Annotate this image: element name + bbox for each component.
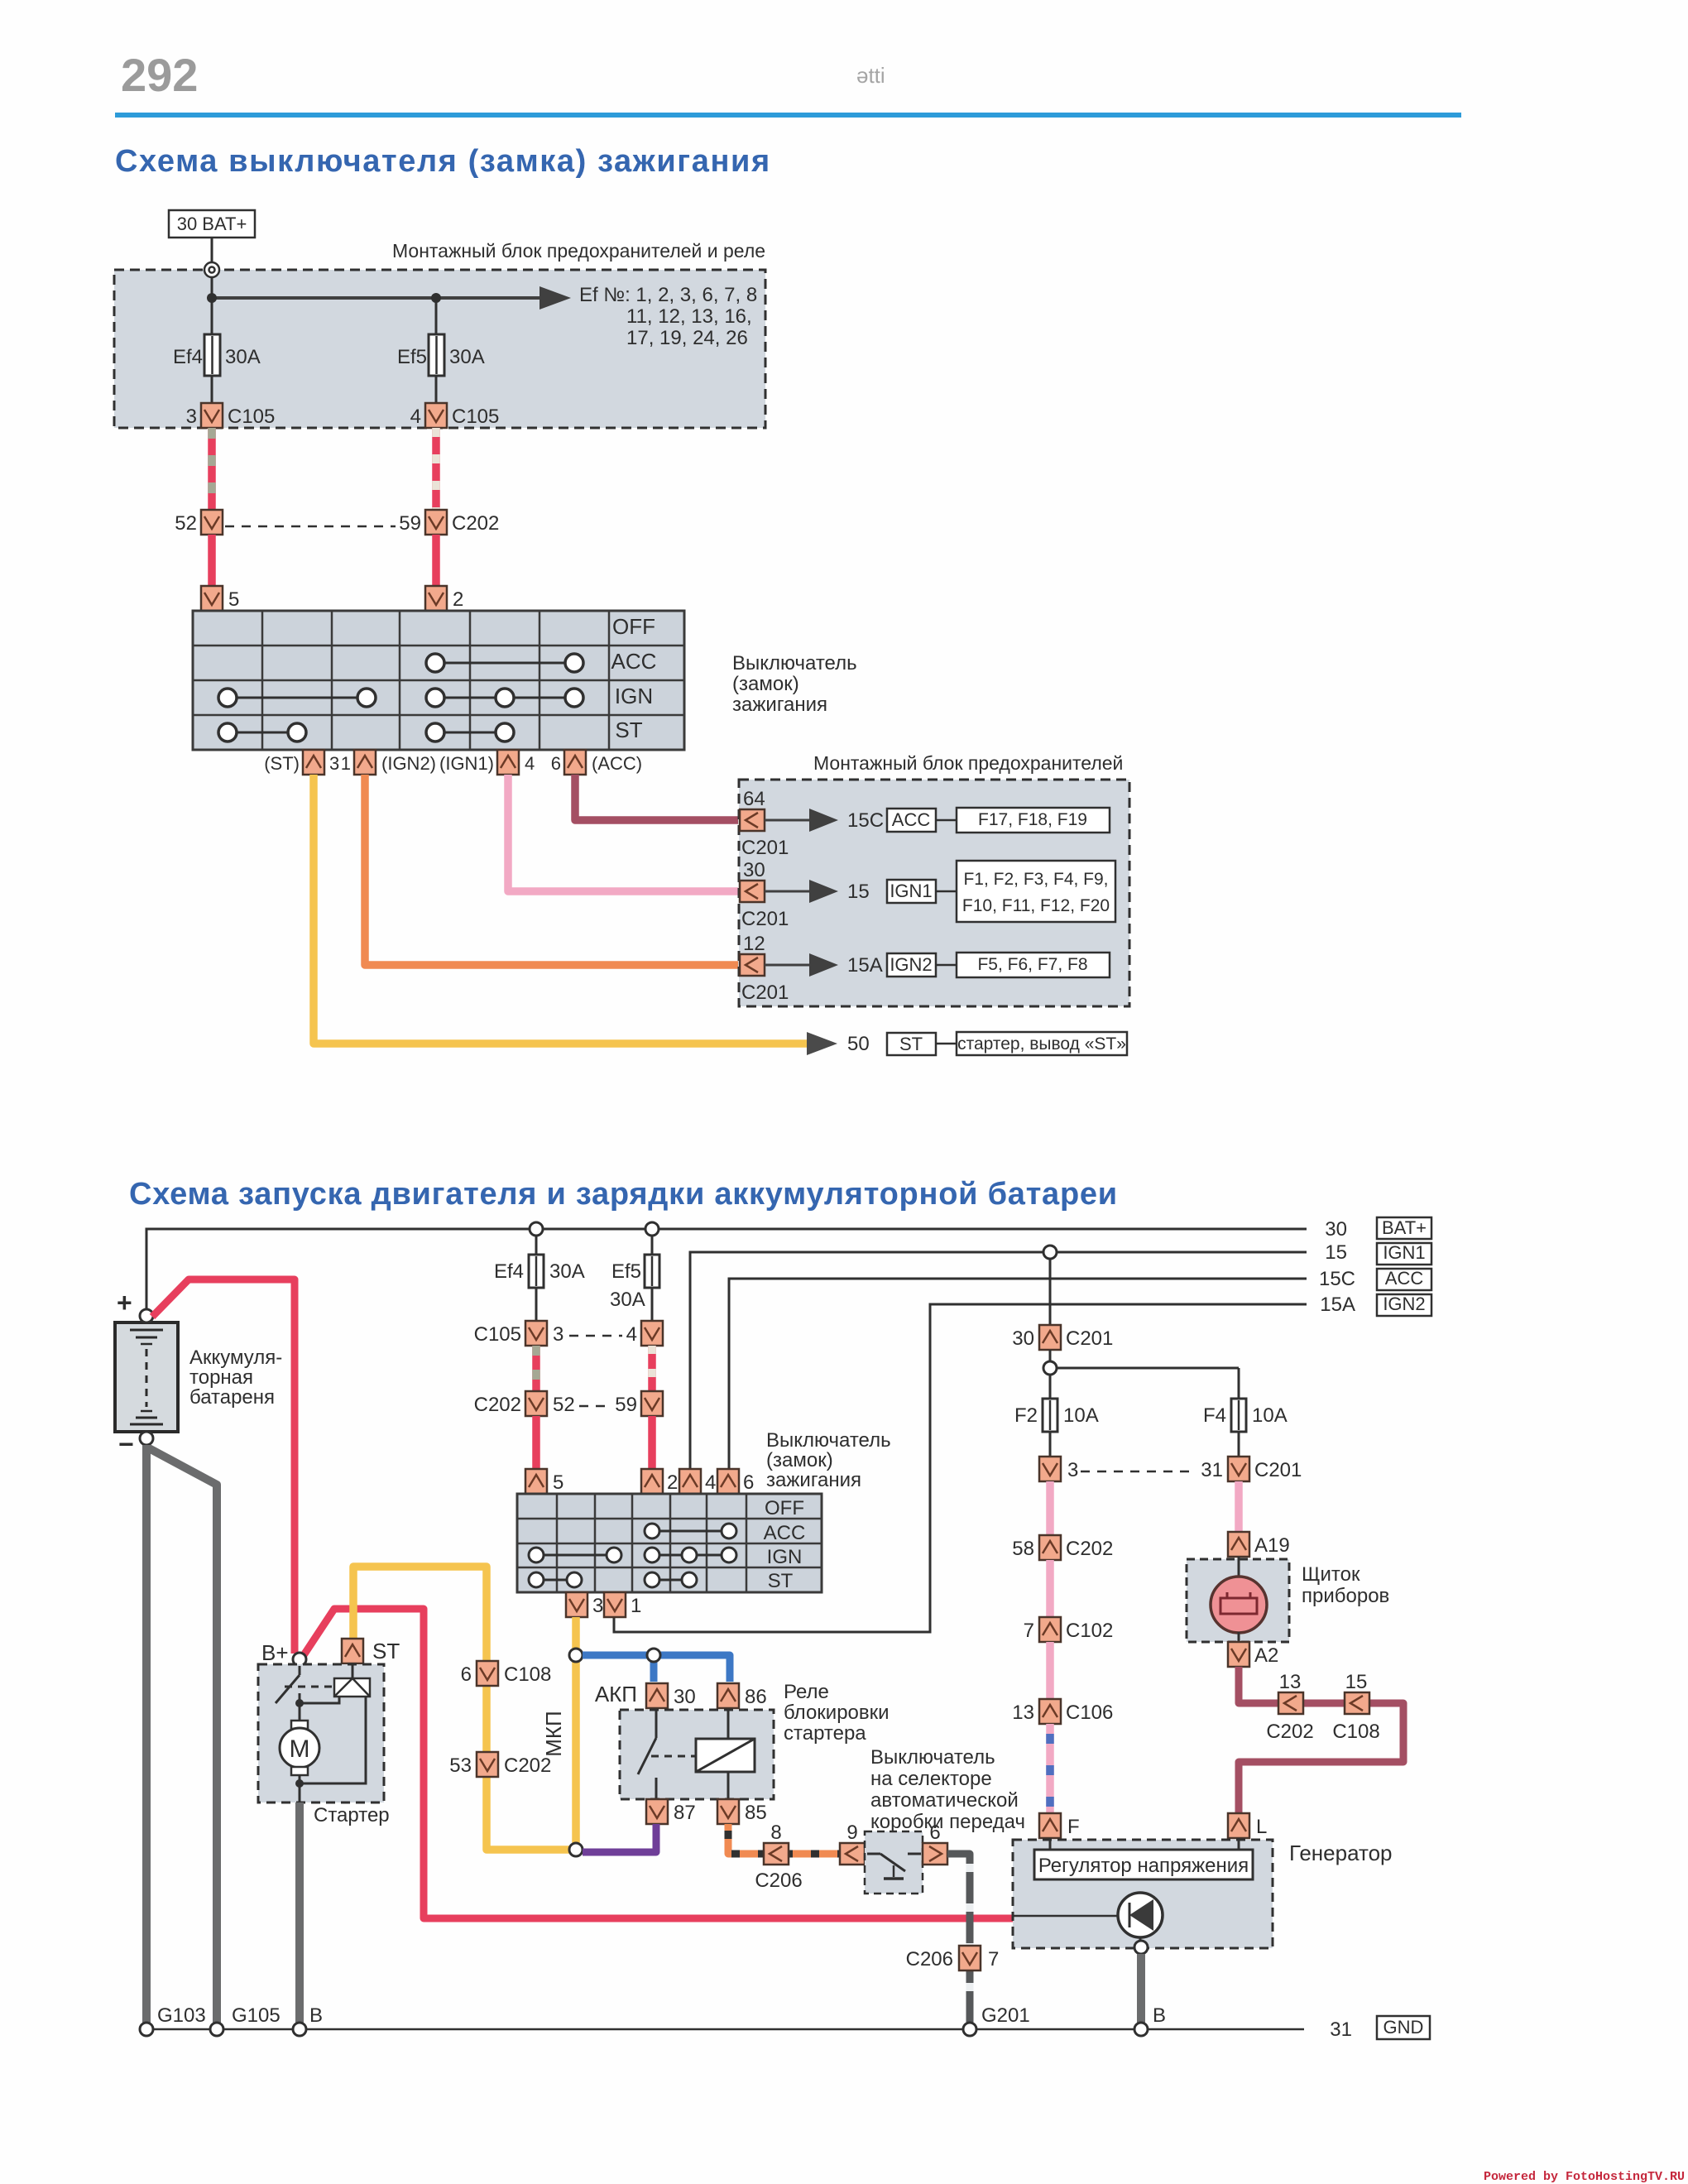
svg-text:C108: C108 [1332, 1721, 1379, 1743]
svg-text:30: 30 [743, 859, 765, 881]
svg-text:АКП: АКП [595, 1682, 637, 1706]
svg-text:59: 59 [399, 512, 421, 535]
svg-text:батареня: батареня [189, 1386, 275, 1409]
svg-text:IGN2: IGN2 [1383, 1294, 1425, 1314]
svg-text:3: 3 [186, 406, 197, 428]
svg-text:G105: G105 [232, 2004, 281, 2027]
svg-text:1: 1 [631, 1595, 641, 1617]
svg-text:30A: 30A [549, 1260, 585, 1283]
svg-text:85: 85 [745, 1802, 767, 1824]
svg-text:F4: F4 [1203, 1404, 1226, 1427]
svg-text:(ST): (ST) [264, 753, 300, 774]
svg-text:11, 12, 13, 16,: 11, 12, 13, 16, [626, 305, 752, 328]
svg-text:ACC: ACC [611, 649, 657, 674]
svg-text:OFF: OFF [765, 1497, 804, 1519]
svg-text:F2: F2 [1014, 1404, 1038, 1427]
svg-text:6: 6 [929, 1822, 940, 1844]
svg-text:C202: C202 [474, 1394, 521, 1416]
svg-text:ACC: ACC [764, 1522, 806, 1544]
svg-text:блокировки: блокировки [784, 1702, 890, 1724]
svg-text:15: 15 [1325, 1241, 1347, 1264]
svg-text:G103: G103 [157, 2004, 206, 2027]
svg-text:13: 13 [1012, 1702, 1034, 1724]
svg-text:Схема выключателя (замка) зажи: Схема выключателя (замка) зажигания [115, 144, 771, 179]
svg-text:6: 6 [743, 1471, 754, 1494]
svg-text:IGN: IGN [615, 684, 653, 708]
svg-text:Регулятор напряжения: Регулятор напряжения [1038, 1855, 1249, 1877]
svg-text:4: 4 [525, 753, 535, 774]
svg-text:C105: C105 [452, 406, 499, 428]
svg-text:Реле: Реле [784, 1681, 829, 1703]
svg-text:Щиток: Щиток [1302, 1563, 1360, 1586]
svg-text:3: 3 [592, 1595, 603, 1617]
svg-text:3: 3 [553, 1323, 563, 1346]
svg-text:(замок): (замок) [766, 1449, 833, 1471]
svg-text:F10, F11, F12, F20: F10, F11, F12, F20 [962, 896, 1110, 915]
svg-text:C201: C201 [741, 837, 789, 859]
svg-text:Монтажный блок предохранителей: Монтажный блок предохранителей [813, 752, 1123, 774]
svg-text:(IGN1): (IGN1) [439, 753, 494, 774]
svg-text:Выключатель: Выключатель [766, 1429, 891, 1452]
svg-text:10A: 10A [1252, 1404, 1288, 1427]
svg-text:7: 7 [1024, 1620, 1034, 1642]
svg-text:30: 30 [674, 1686, 696, 1708]
svg-text:C201: C201 [1066, 1327, 1113, 1350]
svg-text:−: − [118, 1429, 134, 1459]
svg-text:15A: 15A [847, 954, 883, 977]
svg-text:ST: ST [615, 718, 642, 742]
svg-text:59: 59 [615, 1394, 637, 1416]
svg-text:Выключатель: Выключатель [732, 652, 857, 674]
svg-text:BAT+: BAT+ [1382, 1217, 1427, 1238]
svg-text:5: 5 [228, 588, 239, 611]
svg-text:IGN1: IGN1 [1383, 1242, 1425, 1263]
svg-text:Генератор: Генератор [1289, 1841, 1393, 1865]
svg-text:(замок): (замок) [732, 673, 799, 695]
svg-text:64: 64 [743, 788, 765, 810]
svg-text:Ef5: Ef5 [397, 346, 427, 368]
svg-text:3: 3 [329, 753, 339, 774]
svg-text:торная: торная [189, 1366, 253, 1389]
svg-text:ST: ST [372, 1639, 400, 1663]
svg-text:C201: C201 [741, 982, 789, 1004]
svg-text:4: 4 [705, 1471, 716, 1494]
svg-text:F: F [1067, 1816, 1080, 1838]
svg-text:C108: C108 [504, 1663, 551, 1686]
svg-text:зажигания: зажигания [732, 694, 827, 716]
svg-text:C105: C105 [474, 1323, 521, 1346]
svg-text:52: 52 [553, 1394, 575, 1416]
svg-text:10A: 10A [1063, 1404, 1099, 1427]
svg-text:+: + [117, 1288, 132, 1318]
svg-text:G201: G201 [981, 2004, 1030, 2027]
svg-text:ACC: ACC [1385, 1268, 1424, 1289]
svg-text:ST: ST [899, 1034, 923, 1054]
svg-text:Ef4: Ef4 [173, 346, 203, 368]
svg-text:Выключатель: Выключатель [870, 1746, 995, 1769]
svg-text:8: 8 [770, 1822, 781, 1844]
svg-text:58: 58 [1012, 1538, 1034, 1560]
svg-text:31: 31 [1201, 1459, 1223, 1481]
svg-text:F17, F18, F19: F17, F18, F19 [978, 810, 1087, 829]
svg-text:коробки передач: коробки передач [870, 1811, 1025, 1833]
svg-text:приборов: приборов [1302, 1585, 1389, 1607]
svg-text:9: 9 [846, 1822, 857, 1844]
svg-text:7: 7 [988, 1948, 999, 1970]
svg-text:30 BAT+: 30 BAT+ [177, 214, 247, 234]
svg-text:15C: 15C [847, 809, 884, 832]
svg-text:C105: C105 [228, 406, 275, 428]
svg-text:C202: C202 [1066, 1538, 1113, 1560]
svg-text:C206: C206 [755, 1870, 802, 1892]
svg-text:5: 5 [553, 1471, 563, 1494]
svg-text:C202: C202 [504, 1754, 551, 1777]
svg-text:F1, F2, F3, F4, F9,: F1, F2, F3, F4, F9, [963, 870, 1108, 889]
svg-text:30A: 30A [225, 346, 261, 368]
svg-text:31: 31 [1330, 2018, 1352, 2041]
svg-text:52: 52 [175, 512, 197, 535]
svg-text:53: 53 [449, 1754, 472, 1777]
svg-text:L: L [1256, 1816, 1267, 1838]
svg-text:17, 19, 24, 26: 17, 19, 24, 26 [626, 327, 748, 349]
svg-text:IGN2: IGN2 [890, 954, 932, 975]
svg-text:стартера: стартера [784, 1722, 866, 1745]
svg-text:15: 15 [847, 881, 870, 903]
svg-text:GND: GND [1383, 2017, 1424, 2038]
svg-text:13: 13 [1279, 1671, 1302, 1693]
svg-text:B+: B+ [261, 1640, 289, 1665]
svg-text:зажигания: зажигания [766, 1469, 861, 1491]
svg-text:15A: 15A [1320, 1294, 1355, 1316]
svg-text:50: 50 [847, 1033, 870, 1055]
svg-text:Схема запуска двигателя и заря: Схема запуска двигателя и зарядки аккуму… [129, 1177, 1118, 1212]
svg-text:6: 6 [461, 1663, 472, 1686]
svg-text:A19: A19 [1254, 1534, 1290, 1557]
svg-text:IGN1: IGN1 [890, 881, 932, 901]
svg-text:C201: C201 [1254, 1459, 1302, 1481]
svg-text:на селекторе: на селекторе [870, 1768, 992, 1790]
svg-text:12: 12 [743, 933, 765, 955]
svg-text:30A: 30A [449, 346, 485, 368]
svg-text:ACC: ACC [892, 809, 931, 830]
svg-text:3: 3 [1067, 1459, 1078, 1481]
svg-text:15: 15 [1345, 1671, 1368, 1693]
svg-text:автоматической: автоматической [870, 1789, 1019, 1812]
svg-text:Ef5: Ef5 [611, 1260, 641, 1283]
svg-text:B: B [309, 2004, 323, 2027]
svg-text:Ef4: Ef4 [494, 1260, 524, 1283]
svg-text:2: 2 [667, 1471, 678, 1494]
svg-text:OFF: OFF [612, 614, 655, 639]
svg-text:A2: A2 [1254, 1644, 1278, 1667]
svg-text:C202: C202 [452, 512, 499, 535]
svg-text:C201: C201 [741, 908, 789, 930]
svg-text:15C: 15C [1319, 1268, 1355, 1290]
svg-text:Powered by FotoHostingTV.RU: Powered by FotoHostingTV.RU [1484, 2170, 1685, 2184]
svg-text:30: 30 [1325, 1218, 1347, 1241]
svg-text:ST: ST [768, 1570, 794, 1592]
svg-text:30A: 30A [610, 1289, 645, 1311]
svg-text:292: 292 [121, 49, 198, 101]
svg-text:4: 4 [410, 406, 421, 428]
svg-text:Стартер: Стартер [314, 1804, 390, 1826]
svg-text:(IGN2): (IGN2) [381, 753, 436, 774]
svg-text:2: 2 [453, 588, 463, 611]
svg-text:ətti: ətti [856, 63, 885, 88]
svg-text:86: 86 [745, 1686, 767, 1708]
svg-text:C202: C202 [1266, 1721, 1313, 1743]
svg-text:C206: C206 [906, 1948, 953, 1970]
svg-text:4: 4 [626, 1323, 637, 1346]
svg-text:6: 6 [551, 753, 561, 774]
svg-text:Аккумуля-: Аккумуля- [189, 1346, 282, 1369]
svg-text:C106: C106 [1066, 1702, 1113, 1724]
svg-text:стартер, вывод «ST»: стартер, вывод «ST» [957, 1034, 1126, 1054]
svg-text:1: 1 [341, 753, 351, 774]
svg-text:МКП: МКП [541, 1711, 566, 1757]
svg-text:(ACC): (ACC) [592, 753, 642, 774]
svg-text:Монтажный блок предохранителей: Монтажный блок предохранителей и реле [392, 240, 765, 262]
svg-text:87: 87 [674, 1802, 696, 1824]
svg-text:M: M [290, 1735, 310, 1763]
svg-text:IGN: IGN [767, 1546, 803, 1568]
svg-text:B: B [1153, 2004, 1166, 2027]
svg-text:30: 30 [1012, 1327, 1034, 1350]
svg-text:C102: C102 [1066, 1620, 1113, 1642]
svg-text:Ef №: 1, 2, 3, 6, 7, 8: Ef №: 1, 2, 3, 6, 7, 8 [579, 284, 757, 306]
svg-text:F5, F6, F7, F8: F5, F6, F7, F8 [977, 955, 1087, 974]
